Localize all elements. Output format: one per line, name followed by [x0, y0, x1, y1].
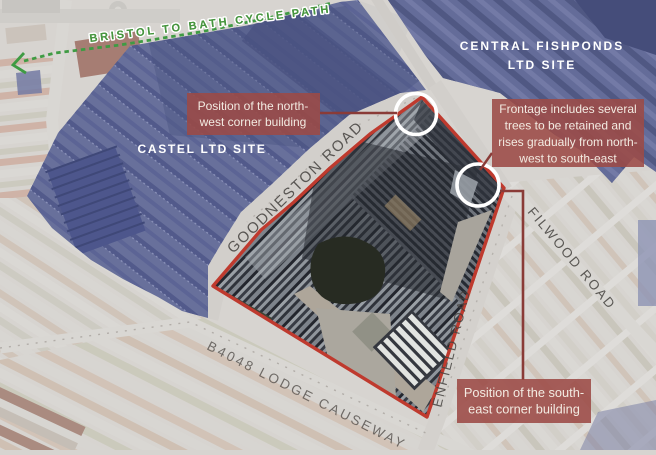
svg-text:LTD SITE: LTD SITE [508, 58, 576, 72]
svg-text:CASTEL LTD SITE: CASTEL LTD SITE [137, 142, 266, 156]
svg-text:trees to be retained and: trees to be retained and [505, 119, 632, 133]
svg-text:Position of the north-: Position of the north- [198, 99, 309, 113]
svg-text:rises gradually from north-: rises gradually from north- [498, 135, 637, 149]
svg-text:west to south-east: west to south-east [518, 152, 617, 166]
svg-text:Position of the south-: Position of the south- [464, 385, 584, 400]
svg-text:Frontage includes several: Frontage includes several [499, 102, 636, 116]
svg-text:CENTRAL FISHPONDS: CENTRAL FISHPONDS [460, 39, 624, 53]
svg-text:east corner building: east corner building [468, 402, 580, 417]
svg-text:west corner building: west corner building [199, 115, 307, 129]
